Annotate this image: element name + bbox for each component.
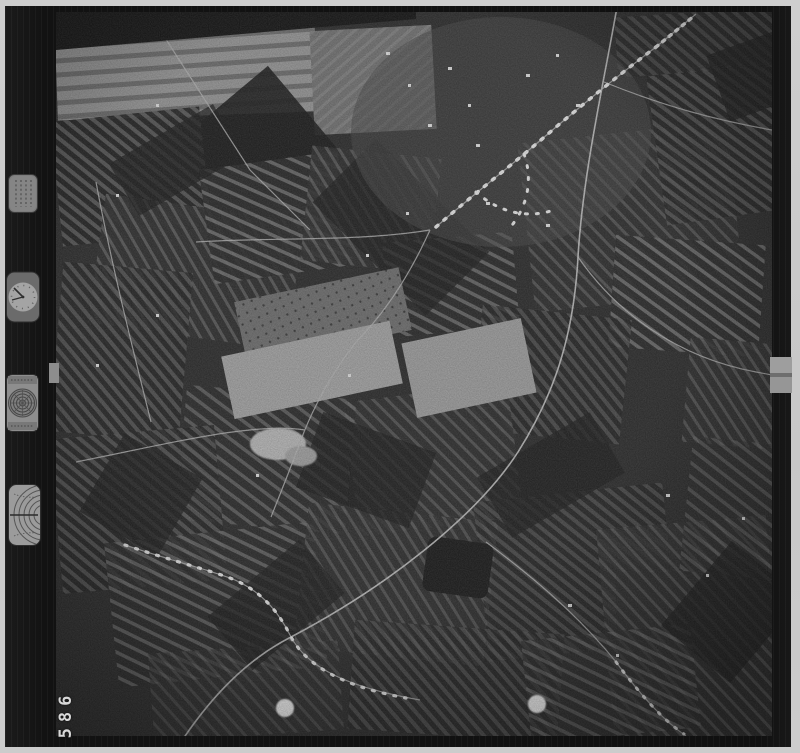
scanned-aerial-photo: 586 xyxy=(0,0,800,753)
altitude-arc-gauge-icon xyxy=(8,484,41,550)
right-edge-notch xyxy=(770,357,792,393)
clock-dial-icon xyxy=(6,271,40,327)
frame-number: 586 xyxy=(55,680,77,748)
aerial-photo-render xyxy=(56,12,772,736)
target-level-dial-icon xyxy=(6,374,39,436)
left-edge-notch xyxy=(49,363,59,383)
aerial-photo xyxy=(56,12,772,736)
vignette xyxy=(56,12,772,736)
info-plate-icon xyxy=(8,174,38,217)
